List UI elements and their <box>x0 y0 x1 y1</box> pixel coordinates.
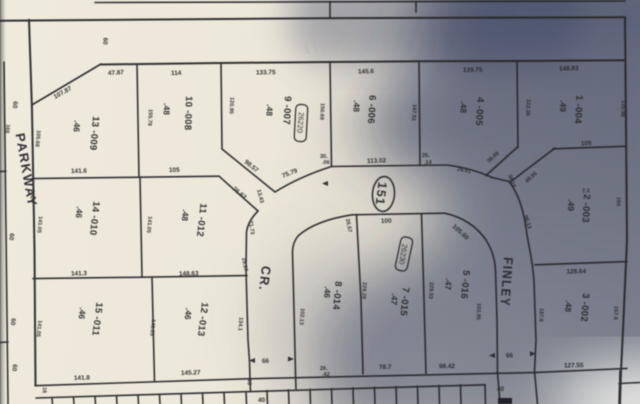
svg-text:148.63: 148.63 <box>179 270 199 277</box>
svg-text:141.05: 141.05 <box>145 216 152 233</box>
svg-text:CR.: CR. <box>256 265 273 292</box>
svg-text:145.27: 145.27 <box>181 369 201 377</box>
svg-text:.06: .06 <box>322 160 330 166</box>
svg-text:78.7: 78.7 <box>379 364 392 371</box>
svg-text:10 -008: 10 -008 <box>182 96 194 131</box>
svg-text:71.73: 71.73 <box>247 220 255 234</box>
svg-text:.48: .48 <box>563 300 574 313</box>
svg-text:.46: .46 <box>183 307 194 320</box>
svg-text:100: 100 <box>381 218 392 225</box>
svg-text:75.79: 75.79 <box>281 167 299 180</box>
svg-text:60: 60 <box>11 101 19 109</box>
svg-text:6 -006: 6 -006 <box>365 95 377 124</box>
svg-text:157.6: 157.6 <box>612 306 618 320</box>
svg-text:13.43: 13.43 <box>255 189 264 204</box>
svg-text:147.51: 147.51 <box>410 104 417 121</box>
svg-text:.49: .49 <box>566 199 577 212</box>
svg-text:7.3: 7.3 <box>582 188 590 194</box>
svg-text:128.64: 128.64 <box>566 268 586 275</box>
svg-text:141.3: 141.3 <box>71 270 88 277</box>
svg-text:187.6: 187.6 <box>538 308 544 322</box>
svg-text:12 -013: 12 -013 <box>195 302 210 337</box>
svg-text:150.69: 150.69 <box>318 103 325 120</box>
svg-text:15 -011: 15 -011 <box>89 302 104 337</box>
svg-text:229.29: 229.29 <box>360 282 367 299</box>
svg-text:1 -004: 1 -004 <box>572 95 585 125</box>
svg-text:13 -009: 13 -009 <box>87 116 101 151</box>
svg-text:151: 151 <box>373 181 390 206</box>
svg-text:47.87: 47.87 <box>108 69 125 77</box>
svg-text:.42: .42 <box>322 372 330 378</box>
svg-text:.48: .48 <box>351 100 362 113</box>
svg-text:.47: .47 <box>389 293 400 306</box>
svg-text:105: 105 <box>581 140 592 147</box>
svg-text:133.75: 133.75 <box>256 69 276 76</box>
svg-text:139.75: 139.75 <box>463 67 483 74</box>
svg-text:60: 60 <box>101 37 108 45</box>
svg-text:.48: .48 <box>264 104 275 117</box>
svg-text:105: 105 <box>169 167 180 174</box>
svg-text:102.95: 102.95 <box>475 303 482 320</box>
svg-text:.46: .46 <box>71 120 82 133</box>
svg-text:114: 114 <box>171 70 182 77</box>
svg-text:.14: .14 <box>424 160 433 166</box>
svg-text:.48: .48 <box>180 209 191 222</box>
svg-text:.48: .48 <box>162 103 172 115</box>
svg-text:122.36: 122.36 <box>524 99 531 116</box>
svg-text:160: 160 <box>615 197 621 206</box>
svg-text:120.90: 120.90 <box>619 100 626 117</box>
svg-text:26220: 26220 <box>295 112 306 134</box>
svg-text:29.27: 29.27 <box>240 257 248 272</box>
svg-text:.46: .46 <box>77 307 88 320</box>
svg-text:141.05: 141.05 <box>36 216 43 233</box>
svg-text:14 -010: 14 -010 <box>87 201 102 236</box>
svg-text:60: 60 <box>9 318 17 326</box>
svg-text:40: 40 <box>258 397 266 404</box>
svg-text:145.6: 145.6 <box>358 68 375 75</box>
svg-text:141.8: 141.8 <box>74 374 91 382</box>
svg-text:16: 16 <box>41 387 47 393</box>
svg-text:.47: .47 <box>443 278 454 291</box>
svg-text:2 -003: 2 -003 <box>579 194 591 223</box>
svg-text:3 -002: 3 -002 <box>578 293 591 322</box>
svg-text:229.53: 229.53 <box>427 282 434 299</box>
svg-text:141.6: 141.6 <box>71 168 88 175</box>
svg-text:98.42: 98.42 <box>439 363 456 370</box>
svg-text:.49: .49 <box>558 100 569 113</box>
svg-text:26.57: 26.57 <box>344 218 352 233</box>
svg-text:26.: 26. <box>422 153 430 159</box>
svg-text:60: 60 <box>7 233 15 241</box>
svg-text:166: 166 <box>4 124 11 134</box>
svg-text:60: 60 <box>28 193 35 200</box>
svg-text:11 -012: 11 -012 <box>194 203 208 238</box>
svg-text:113.02: 113.02 <box>367 157 387 165</box>
svg-text:.46: .46 <box>74 206 85 219</box>
svg-text:102.13: 102.13 <box>298 308 305 325</box>
svg-text:155.78: 155.78 <box>146 109 153 126</box>
svg-text:18: 18 <box>246 379 252 385</box>
svg-text:148.83: 148.83 <box>559 65 579 72</box>
svg-text:4 -005: 4 -005 <box>473 97 486 127</box>
svg-text:60: 60 <box>10 364 18 372</box>
svg-text:9 -007: 9 -007 <box>280 96 292 125</box>
svg-text:66: 66 <box>262 358 270 365</box>
svg-text:141.05: 141.05 <box>148 319 156 336</box>
svg-text:40: 40 <box>497 386 505 393</box>
svg-text:.48: .48 <box>458 101 469 114</box>
svg-text:.46: .46 <box>322 286 333 299</box>
svg-text:127.55: 127.55 <box>564 362 584 369</box>
svg-text:120.95: 120.95 <box>228 97 235 114</box>
svg-text:134.1: 134.1 <box>236 317 243 331</box>
svg-text:105.68: 105.68 <box>34 130 41 147</box>
svg-text:66: 66 <box>506 352 514 359</box>
